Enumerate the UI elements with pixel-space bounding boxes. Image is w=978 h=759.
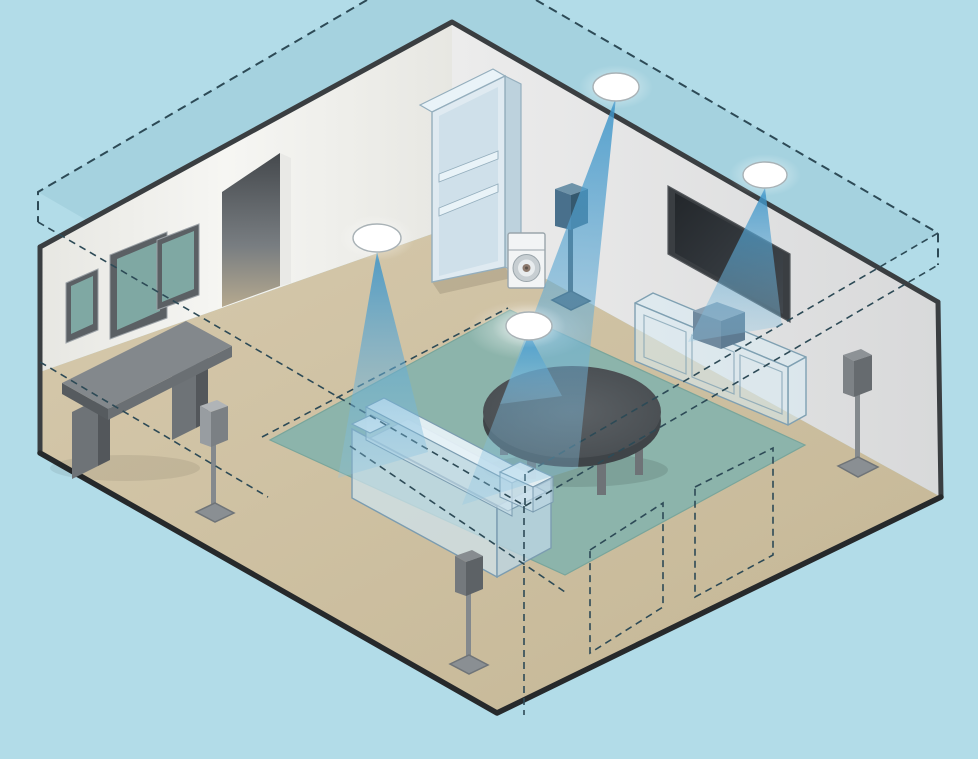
speaker-side [466, 556, 483, 596]
speaker-front [843, 355, 854, 397]
console-end [788, 357, 806, 425]
ceiling-speaker-3 [743, 162, 787, 188]
speaker-pole [466, 592, 471, 658]
ceiling-speaker-2 [593, 73, 639, 101]
speaker-front [455, 556, 466, 596]
ceiling-speaker-1 [353, 224, 401, 252]
speaker-side [211, 406, 228, 447]
media-player [508, 233, 545, 288]
door-jamb [280, 153, 291, 286]
scene-canvas [0, 0, 978, 759]
room-illustration [0, 0, 978, 759]
bookshelf [420, 69, 521, 294]
speaker-pole [211, 443, 216, 507]
disc-spindle [525, 267, 528, 270]
speaker-pole [855, 394, 860, 460]
table-leg [597, 460, 606, 495]
speaker-front [200, 406, 211, 447]
speaker-side [854, 355, 872, 397]
bookshelf-interior [439, 87, 498, 276]
ceiling-speaker-4 [506, 312, 552, 340]
